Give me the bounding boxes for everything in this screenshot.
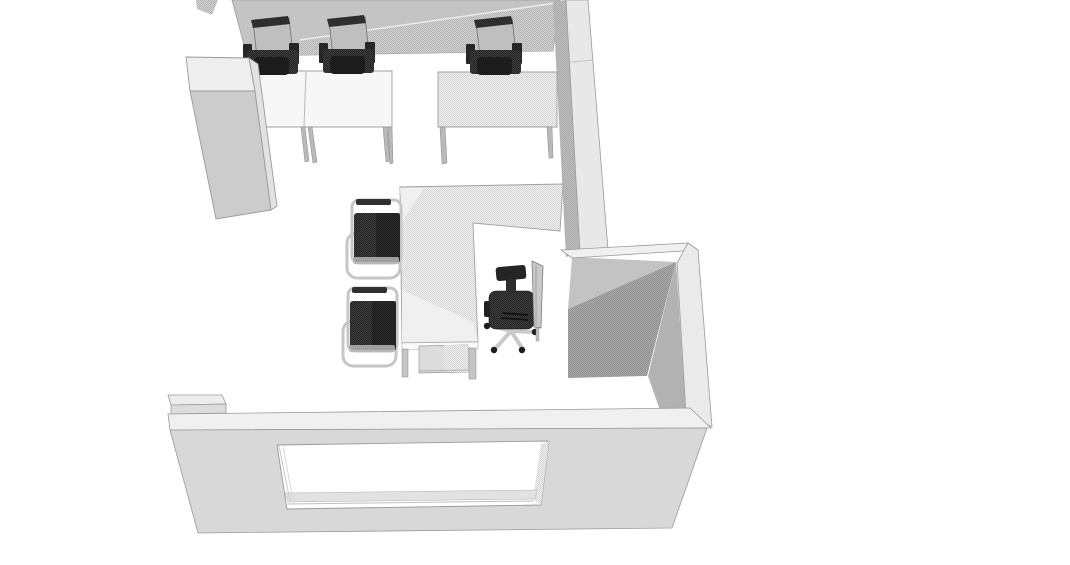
desk-1-2-top (252, 71, 392, 127)
office-3d-render (0, 0, 1070, 565)
chair-seat-back (489, 291, 534, 329)
base-spoke (511, 331, 522, 348)
north-wall-left-patch (196, 0, 218, 15)
l-desk-leg-left (402, 349, 408, 377)
workstation-desks (252, 71, 557, 164)
visitor-chair-1 (347, 199, 401, 278)
task-chair (484, 261, 543, 353)
south-wall-block-top (168, 395, 226, 405)
base-spoke (511, 331, 534, 332)
cabinet-top-face (186, 57, 255, 91)
south-wall (168, 395, 711, 533)
chair-headrest (495, 265, 526, 282)
monitor-stand-foot (536, 328, 539, 341)
visitor-chair-2 (343, 287, 397, 366)
south-wall-block-front (171, 404, 226, 414)
desk-3-top-hatched (438, 72, 557, 127)
monitor-side-view (532, 261, 543, 328)
desk-leg (301, 127, 309, 162)
corner-wall-return (561, 243, 712, 427)
caster-wheel (519, 347, 525, 353)
chair-armrest-left (484, 301, 490, 317)
l-desk-leg-right (469, 348, 476, 379)
desk-leg (547, 127, 553, 158)
desk-leg (308, 127, 317, 163)
caster-wheel (491, 347, 497, 353)
chair-headrest-stem (506, 279, 516, 293)
south-wall-top-cap (168, 408, 711, 430)
desk-leg (440, 127, 447, 164)
drawer-unit-hatch (444, 345, 468, 372)
render-canvas (0, 0, 1070, 565)
base-spoke (495, 331, 511, 349)
